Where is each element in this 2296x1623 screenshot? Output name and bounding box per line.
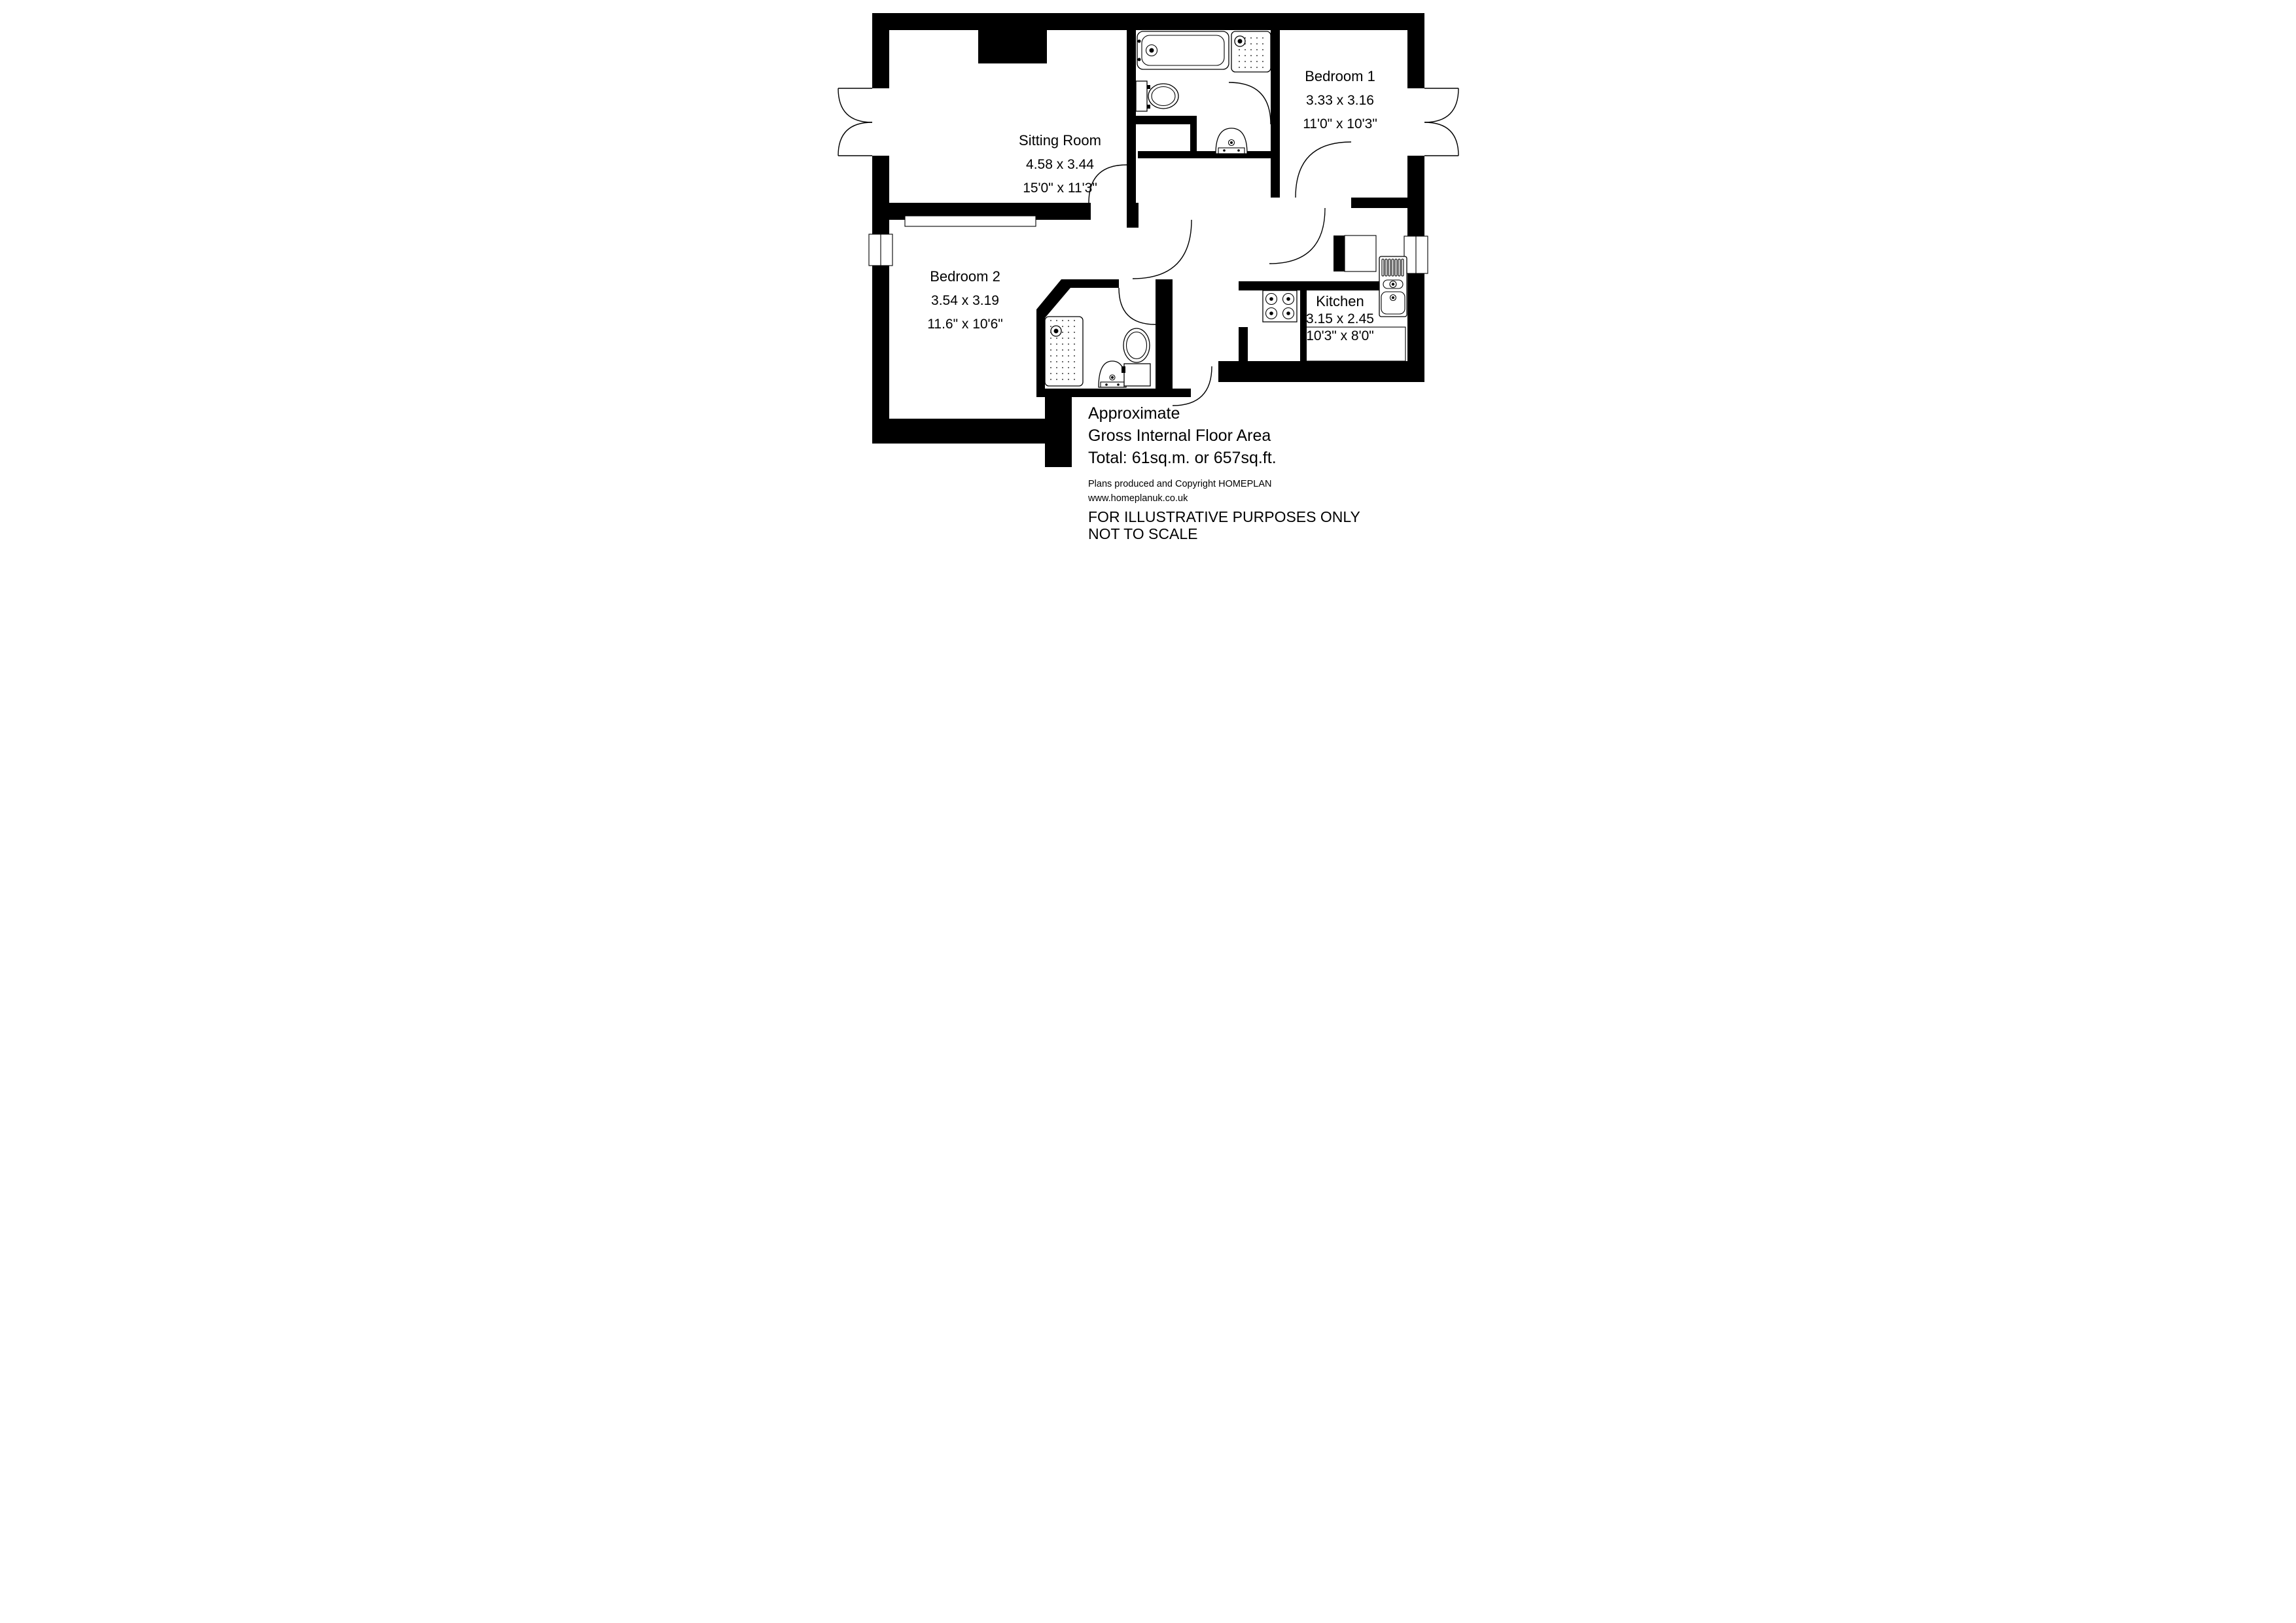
wall-bedroom2-right — [1045, 389, 1072, 467]
wall-bathroom-bottom — [1127, 116, 1197, 124]
door-bedroom1 — [1296, 142, 1351, 198]
label-sitting-room: Sitting Room 4.58 x 3.44 15'0" x 11'3" — [1019, 132, 1101, 196]
wall-lobby-left — [1239, 327, 1248, 361]
copyright-line2: www.homeplanuk.co.uk — [1087, 493, 1188, 504]
cupboard-kitchen — [1345, 236, 1376, 271]
wall-kitchen-top — [1239, 281, 1396, 290]
chimney-breast — [978, 30, 1047, 63]
wall-bathroom-bedroom1-divider — [1271, 30, 1280, 198]
label-bedroom1: Bedroom 1 3.33 x 3.16 11'0" x 10'3" — [1303, 68, 1377, 131]
toilet-shower-room — [1122, 328, 1150, 386]
label-kitchen: Kitchen 3.15 x 2.45 10'3" x 8'0" — [1306, 293, 1374, 343]
bedroom1-metric: 3.33 x 3.16 — [1306, 93, 1374, 108]
kitchen-metric: 3.15 x 2.45 — [1306, 311, 1374, 326]
wash-basin-shower-room — [1099, 361, 1126, 387]
bedroom2-imperial: 11.6" x 10'6" — [927, 317, 1002, 332]
bedroom2-metric: 3.54 x 3.19 — [931, 293, 999, 308]
wall-right-mid — [1407, 156, 1424, 236]
wardrobe-recess-bedroom2 — [905, 216, 1036, 226]
floorplan-page: Sitting Room 4.58 x 3.44 15'0" x 11'3" B… — [766, 0, 1531, 541]
wall-shower-room-left — [1036, 309, 1045, 389]
wall-left-upper — [872, 13, 889, 88]
bath — [1137, 31, 1229, 69]
sink-unit — [1379, 256, 1407, 317]
wall-cupboard-stub — [1333, 236, 1345, 271]
shower-tray-bathroom — [1231, 31, 1271, 72]
bedroom1-name: Bedroom 1 — [1305, 68, 1375, 84]
wash-basin-bathroom — [1216, 128, 1247, 154]
french-doors-bedroom1 — [1424, 88, 1458, 156]
wall-top — [872, 13, 1424, 30]
sitting-room-imperial: 15'0" x 11'3" — [1023, 181, 1097, 196]
wall-kitchen-bottom — [1218, 361, 1424, 382]
wall-shower-room-top — [1061, 279, 1119, 288]
area-line2: Gross Internal Floor Area — [1088, 427, 1271, 445]
wall-hall-shower-divider — [1156, 279, 1173, 397]
area-line3: Total: 61sq.m. or 657sq.ft. — [1088, 449, 1277, 467]
door-kitchen — [1269, 208, 1325, 264]
sitting-room-name: Sitting Room — [1019, 132, 1101, 148]
wall-right-upper — [1407, 13, 1424, 88]
door-bathroom — [1229, 82, 1271, 124]
wall-left-lower — [872, 266, 889, 444]
wall-stub-hall — [1127, 203, 1139, 228]
door-inner-hall — [1133, 220, 1192, 279]
toilet-bathroom — [1136, 81, 1178, 111]
bedroom1-imperial: 11'0" x 10'3" — [1303, 116, 1377, 131]
kitchen-imperial: 10'3" x 8'0" — [1306, 328, 1374, 343]
hob — [1263, 290, 1297, 322]
floorplan-drawing: Sitting Room 4.58 x 3.44 15'0" x 11'3" B… — [766, 0, 1531, 541]
shower-tray-shower-room — [1045, 317, 1083, 386]
bedroom2-name: Bedroom 2 — [930, 268, 1000, 285]
area-line1: Approximate — [1088, 404, 1180, 423]
sitting-room-metric: 4.58 x 3.44 — [1026, 157, 1094, 172]
copyright-line1: Plans produced and Copyright HOMEPLAN — [1088, 479, 1271, 489]
entrance-door — [1173, 366, 1212, 406]
label-bedroom2: Bedroom 2 3.54 x 3.19 11.6" x 10'6" — [927, 268, 1002, 332]
window-bedroom2 — [869, 234, 892, 266]
french-doors-sitting-room — [838, 88, 872, 156]
floor-area-note: Approximate Gross Internal Floor Area To… — [1088, 404, 1277, 467]
copyright-note: Plans produced and Copyright HOMEPLAN ww… — [1087, 479, 1271, 504]
wall-left-mid — [872, 156, 889, 234]
window-kitchen — [1404, 236, 1428, 273]
disclaimer-line1: FOR ILLUSTRATIVE PURPOSES ONLY — [1088, 508, 1360, 525]
wall-bedroom2-bottom — [872, 419, 1062, 444]
disclaimer-note: FOR ILLUSTRATIVE PURPOSES ONLY NOT TO SC… — [1088, 508, 1360, 541]
wall-basin-nook-bottom — [1138, 151, 1271, 158]
disclaimer-line2: NOT TO SCALE — [1088, 525, 1197, 541]
door-shower-room — [1119, 288, 1156, 324]
kitchen-name: Kitchen — [1316, 293, 1364, 309]
